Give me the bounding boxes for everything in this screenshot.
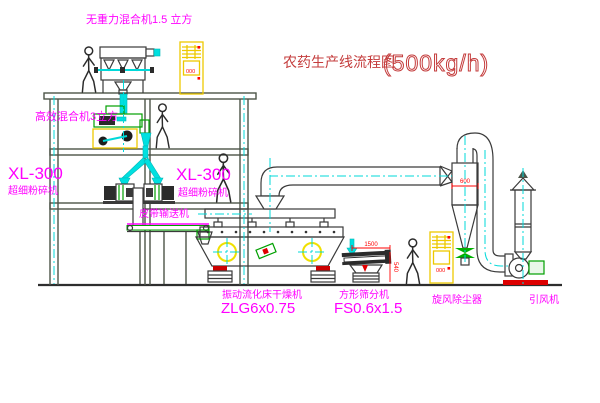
- label-dryer-model: ZLG6x0.75: [221, 300, 295, 317]
- cyclone-separator: 600: [452, 133, 493, 265]
- person-figure-ground: [406, 239, 419, 284]
- label-induced-fan: 引风机: [529, 293, 559, 306]
- belt-conveyor: [127, 224, 212, 284]
- page-title-capacity: (500kg/h): [383, 50, 489, 76]
- y-branch-pipe: [119, 158, 163, 184]
- floor2-beam: [50, 149, 248, 155]
- fan-base: [503, 280, 548, 285]
- roof-beam: [44, 93, 256, 99]
- cabinet-indicator: 000: [186, 69, 195, 75]
- label-mill-left-name: 超细粉碎机: [8, 184, 58, 197]
- control-cabinet-ground: 000: [430, 232, 453, 283]
- control-cabinet-roof: 000: [180, 42, 203, 94]
- fan-motor: [529, 261, 544, 274]
- label-mill-mid-model: XL-300: [176, 165, 231, 184]
- sieve-length-dim: 1500: [364, 242, 378, 248]
- page-title: 农药生产线流程图: [283, 54, 395, 70]
- discharge-duct: [133, 188, 143, 226]
- pulverizer-left: [103, 184, 135, 204]
- sieve-height-dim: 540: [392, 262, 398, 273]
- person-figure-roof: [82, 47, 95, 92]
- label-sieve-model: FS0.6x1.5: [334, 300, 402, 317]
- process-flow-diagram: 000: [0, 0, 600, 403]
- label-mill-mid-name: 超细粉碎机: [178, 186, 228, 199]
- cabinet-indicator: 000: [436, 268, 445, 274]
- label-high-efficiency-mixer: 高效混合机3立方: [35, 109, 118, 123]
- label-dust-collector: 旋风除尘器: [432, 293, 482, 306]
- label-roof-mixer: 无重力混合机1.5 立方: [86, 12, 192, 26]
- pulverizer-right: [143, 184, 175, 204]
- label-belt-conveyor: 皮带输送机: [139, 207, 189, 220]
- fluid-bed-dryer: [196, 209, 344, 282]
- square-sieve: 1500 540: [342, 239, 398, 282]
- downcomer-pipe: [477, 156, 509, 272]
- person-figure-floor2: [156, 104, 169, 148]
- exhaust-duct: [256, 166, 452, 209]
- vibration-motor: [256, 243, 276, 258]
- diagram-svg: 000: [0, 0, 600, 403]
- label-mill-left-model: XL-300: [8, 164, 63, 183]
- mixer-spout: [154, 49, 160, 56]
